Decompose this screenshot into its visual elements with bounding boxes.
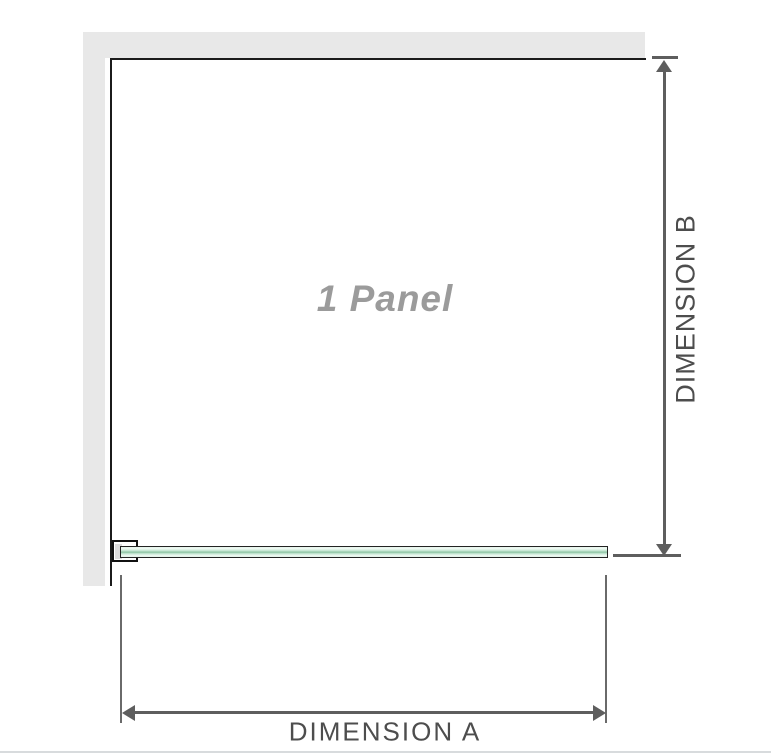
page-divider <box>0 751 771 753</box>
dimension-a-line <box>130 711 598 714</box>
panel-frame-left-line <box>110 58 112 586</box>
dimension-diagram: DIMENSION B DIMENSION A 1 Panel <box>0 0 771 755</box>
arrow-right-icon <box>593 705 606 721</box>
panel-label: 1 Panel <box>317 278 454 320</box>
wall-left-bar <box>83 32 105 586</box>
panel-frame-top-line <box>110 58 646 60</box>
arrow-up-icon <box>656 60 672 72</box>
dimension-b-line <box>663 70 666 546</box>
dimension-a-extension-left <box>120 575 122 723</box>
wall-top-bar <box>83 32 645 58</box>
dimension-b-label: DIMENSION B <box>671 214 702 404</box>
dimension-b-tick-top <box>652 56 678 59</box>
arrow-left-icon <box>122 705 135 721</box>
dimension-a-label: DIMENSION A <box>289 717 481 748</box>
arrow-down-icon <box>656 544 672 556</box>
glass-panel-bar <box>120 546 608 558</box>
dimension-a-extension-right <box>605 575 607 723</box>
